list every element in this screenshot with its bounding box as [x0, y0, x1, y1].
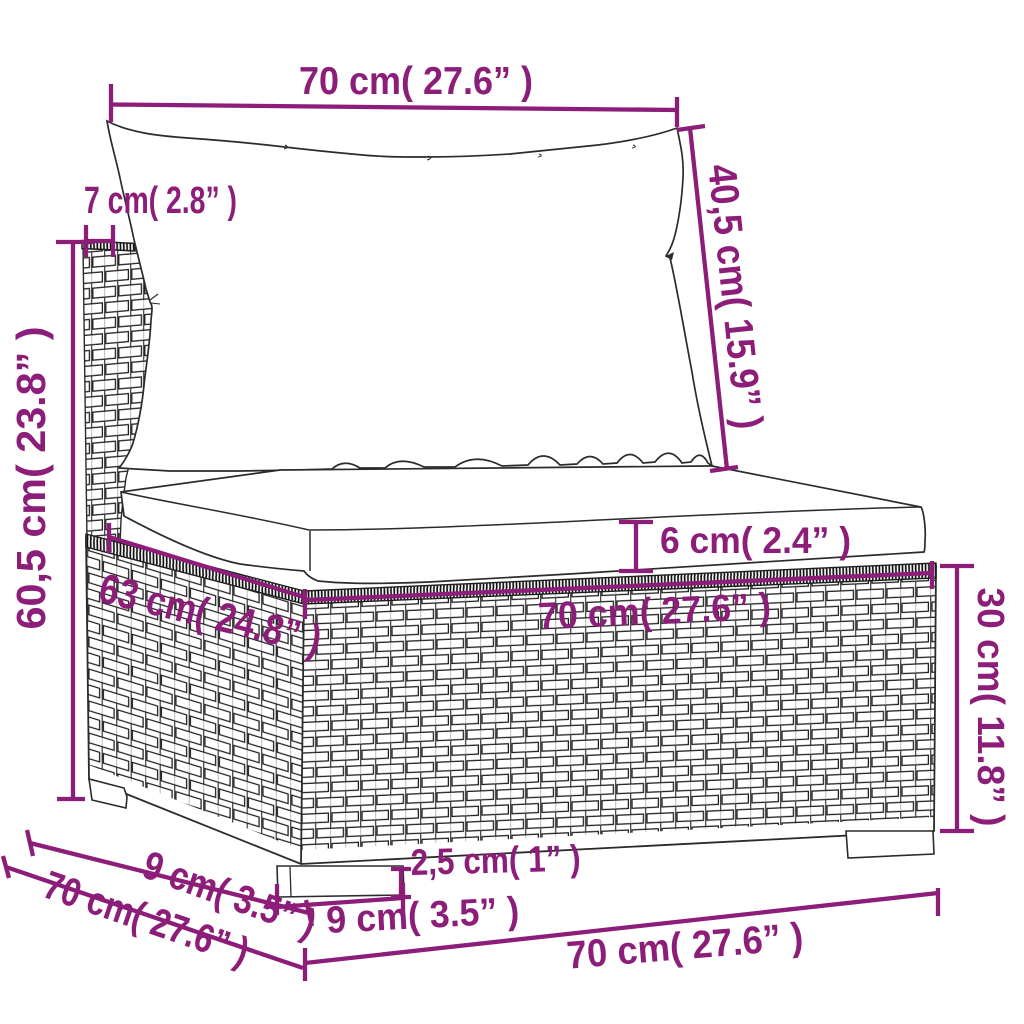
svg-text:60,5 cm( 23.8” ): 60,5 cm( 23.8” ): [8, 327, 54, 630]
svg-text:6 cm( 2.4” ): 6 cm( 2.4” ): [660, 520, 851, 561]
svg-text:70 cm( 27.6” ): 70 cm( 27.6” ): [299, 60, 533, 103]
svg-text:30 cm( 11.8” ): 30 cm( 11.8” ): [969, 588, 1011, 827]
svg-text:7 cm( 2.8” ): 7 cm( 2.8” ): [84, 180, 237, 222]
svg-text:2,5 cm( 1” ): 2,5 cm( 1” ): [410, 838, 581, 883]
